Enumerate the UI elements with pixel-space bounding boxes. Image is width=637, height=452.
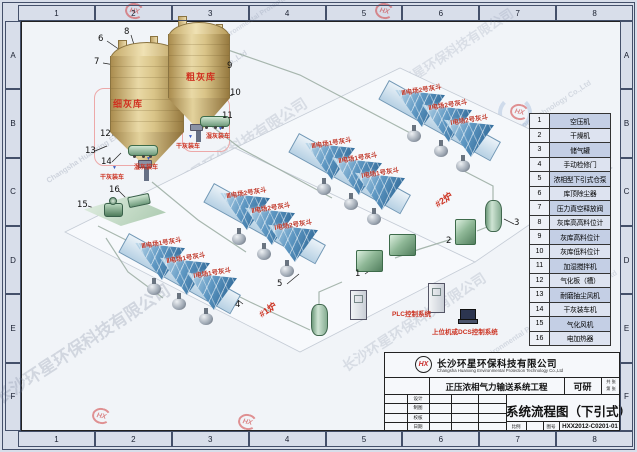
field-draft-label: 制图 (407, 405, 429, 411)
legend-row: 4手动检修门 (530, 158, 610, 173)
legend-no: 4 (530, 158, 550, 172)
legend-row: 8灰库高高料位计 (530, 216, 610, 231)
frame-col-label: 5 (326, 431, 403, 447)
drawing-sheet: 长沙环星环保科技有限公司 长沙环星环保科技有限公司 长沙环星环保科技有限公司 长… (0, 0, 637, 452)
legend-name: 干燥机 (550, 129, 610, 143)
callout-number: 8 (124, 27, 129, 37)
frame-col-label: 3 (172, 431, 249, 447)
legend-no: 5 (530, 172, 550, 186)
legend-name: 气化风机 (550, 317, 610, 331)
frame-row-label: A (620, 21, 633, 89)
legend-no: 1 (530, 114, 550, 128)
design-stage: 可研 (564, 380, 601, 393)
frame-column-ruler-bottom: 1 2 3 4 5 6 7 8 (18, 431, 633, 447)
legend-row: 1空压机 (530, 114, 610, 129)
frame-row-label: D (5, 226, 21, 294)
wet-ash-loading-label: 湿灰装车 (134, 162, 158, 171)
silo-pump (199, 313, 213, 325)
frame-col-label: 6 (402, 5, 479, 21)
callout-number: 16 (109, 185, 120, 195)
scale-label: 比例 (506, 424, 526, 430)
drawing-number: HXX2012-C0201-01 (559, 423, 621, 430)
silo-body (168, 34, 230, 98)
legend-name: 压力真空释放阀 (550, 201, 610, 215)
legend-row: 3储气罐 (530, 143, 610, 158)
legend-row: 14干灰装车机 (530, 303, 610, 318)
legend-row: 10灰库低料位计 (530, 245, 610, 260)
legend-row: 2干燥机 (530, 129, 610, 144)
frame-col-label: 4 (249, 5, 326, 21)
gasification-fan (104, 203, 123, 217)
humidifying-mixer (128, 145, 158, 156)
silo-pump (232, 233, 246, 245)
silo-pump (434, 145, 448, 157)
silo-pump (456, 160, 470, 172)
frame-col-label: 2 (95, 431, 172, 447)
legend-no: 13 (530, 288, 550, 302)
callout-number: 7 (94, 57, 99, 67)
frame-col-label: 8 (556, 431, 633, 447)
frame-col-label: 2 (95, 5, 172, 21)
drawing-no-label: 图号 (543, 424, 559, 430)
callout-number: 9 (227, 61, 232, 71)
silo-pump (280, 265, 294, 277)
frame-row-ruler-right: A B C D E F (620, 21, 633, 431)
legend-no: 6 (530, 187, 550, 201)
legend-name: 电加热器 (550, 332, 610, 346)
frame-col-label: 1 (18, 431, 95, 447)
frame-col-label: 1 (18, 5, 95, 21)
field-design-label: 设计 (407, 396, 429, 402)
legend-no: 12 (530, 274, 550, 288)
callout-number: 13 (85, 146, 96, 156)
project-name: 正压浓相气力输送系统工程 (429, 381, 564, 393)
legend-name: 加湿搅拌机 (550, 259, 610, 273)
legend-row: 11加湿搅拌机 (530, 259, 610, 274)
legend-row: 9灰库高料位计 (530, 230, 610, 245)
frame-col-label: 6 (402, 431, 479, 447)
callout-number: 3 (514, 218, 519, 228)
callout-number: 11 (222, 111, 233, 121)
frame-col-label: 4 (249, 431, 326, 447)
silo-pump (172, 298, 186, 310)
legend-name: 空压机 (550, 114, 610, 128)
legend-no: 2 (530, 129, 550, 143)
legend-no: 15 (530, 317, 550, 331)
legend-name: 灰库高料位计 (550, 230, 610, 244)
frame-row-label: E (5, 294, 21, 362)
silo-pump (317, 183, 331, 195)
silo-pump (257, 248, 271, 260)
dry-ash-loading-label: 干灰装车 (100, 172, 124, 181)
legend-name: 手动检修门 (550, 158, 610, 172)
legend-row: 12气化板（槽） (530, 274, 610, 289)
legend-no: 10 (530, 245, 550, 259)
legend-name: 灰库低料位计 (550, 245, 610, 259)
equipment-legend-table: 1空压机 2干燥机 3储气罐 4手动检修门 5浓相型下引式仓泵 6库顶除尘器 7… (529, 113, 611, 346)
legend-no: 11 (530, 259, 550, 273)
frame-col-label: 3 (172, 5, 249, 21)
callout-number: 14 (101, 157, 112, 167)
silo-pump (407, 130, 421, 142)
legend-row: 15气化风机 (530, 317, 610, 332)
callout-number: 6 (98, 34, 103, 44)
callout-number: 15 (77, 200, 88, 210)
callout-number: 5 (277, 279, 282, 289)
frame-col-label: 7 (479, 5, 556, 21)
discharge-arrow-icon: ▼ (112, 165, 117, 171)
legend-no: 8 (530, 216, 550, 230)
discharge-arrow-icon: ▼ (188, 134, 193, 140)
gas-storage-tank (485, 200, 502, 232)
legend-name: 库顶除尘器 (550, 187, 610, 201)
plc-cabinet (350, 290, 367, 320)
legend-name: 气化板（槽） (550, 274, 610, 288)
legend-name: 浓相型下引式仓泵 (550, 172, 610, 186)
legend-row: 16电加热器 (530, 332, 610, 346)
company-logo: HX (415, 356, 432, 373)
legend-name: 干灰装车机 (550, 303, 610, 317)
silo-pump (147, 283, 161, 295)
legend-no: 16 (530, 332, 550, 346)
frame-column-ruler-top: 1 2 3 4 5 6 7 8 (18, 5, 633, 21)
frame-row-label: D (620, 226, 633, 294)
callout-number: 2 (446, 236, 451, 246)
frame-row-ruler-left: A B C D E F (5, 21, 21, 431)
air-dryer (455, 219, 476, 245)
frame-row-label: F (5, 363, 21, 431)
legend-no: 14 (530, 303, 550, 317)
legend-row: 13耐磨抽尘风机 (530, 288, 610, 303)
silo-pump (344, 198, 358, 210)
legend-no: 7 (530, 201, 550, 215)
frame-row-label: E (620, 294, 633, 362)
callout-number: 4 (235, 300, 240, 310)
dcs-laptop (458, 309, 476, 323)
legend-row: 6库顶除尘器 (530, 187, 610, 202)
coarse-ash-silo-label: 粗灰库 (186, 70, 216, 83)
frame-col-label: 7 (479, 431, 556, 447)
legend-row: 5浓相型下引式仓泵 (530, 172, 610, 187)
gas-storage-tank (311, 304, 328, 336)
callout-number: 10 (230, 88, 241, 98)
title-block: HX 长沙环星环保科技有限公司 Changsha Huanxing Enviro… (384, 352, 620, 431)
legend-no: 3 (530, 143, 550, 157)
legend-row: 7压力真空释放阀 (530, 201, 610, 216)
callout-number: 1 (355, 269, 360, 279)
frame-row-label: F (620, 363, 633, 431)
field-date-label: 日期 (407, 424, 429, 430)
legend-name: 灰库高高料位计 (550, 216, 610, 230)
frame-row-label: B (620, 89, 633, 157)
dry-ash-loading-label: 干灰装车 (176, 141, 200, 150)
callout-number: 12 (100, 129, 111, 139)
frame-row-label: B (5, 89, 21, 157)
frame-row-label: C (620, 158, 633, 226)
company-name-en: Changsha Huanxing Environmental Protecti… (437, 368, 563, 373)
frame-row-label: A (5, 21, 21, 89)
wet-ash-loading-label: 湿灰装车 (206, 131, 230, 140)
frame-col-label: 8 (556, 5, 633, 21)
legend-name: 储气罐 (550, 143, 610, 157)
air-compressor (389, 234, 416, 256)
silo-pump (367, 213, 381, 225)
sheet-no-label: 第 张 (601, 386, 621, 392)
laptop-base (458, 319, 478, 324)
legend-no: 9 (530, 230, 550, 244)
dcs-control-label: 上位机或DCS控制系统 (432, 326, 498, 336)
plc-control-label: PLC控制系统 (392, 308, 431, 318)
legend-name: 耐磨抽尘风机 (550, 288, 610, 302)
sheet-total-label: 共 张 (601, 379, 621, 385)
drawing-title: 系统流程图（下引式） (506, 401, 621, 420)
field-check-label: 校核 (407, 415, 429, 421)
fine-ash-silo-label: 细灰库 (113, 97, 143, 110)
frame-col-label: 5 (326, 5, 403, 21)
frame-row-label: C (5, 158, 21, 226)
